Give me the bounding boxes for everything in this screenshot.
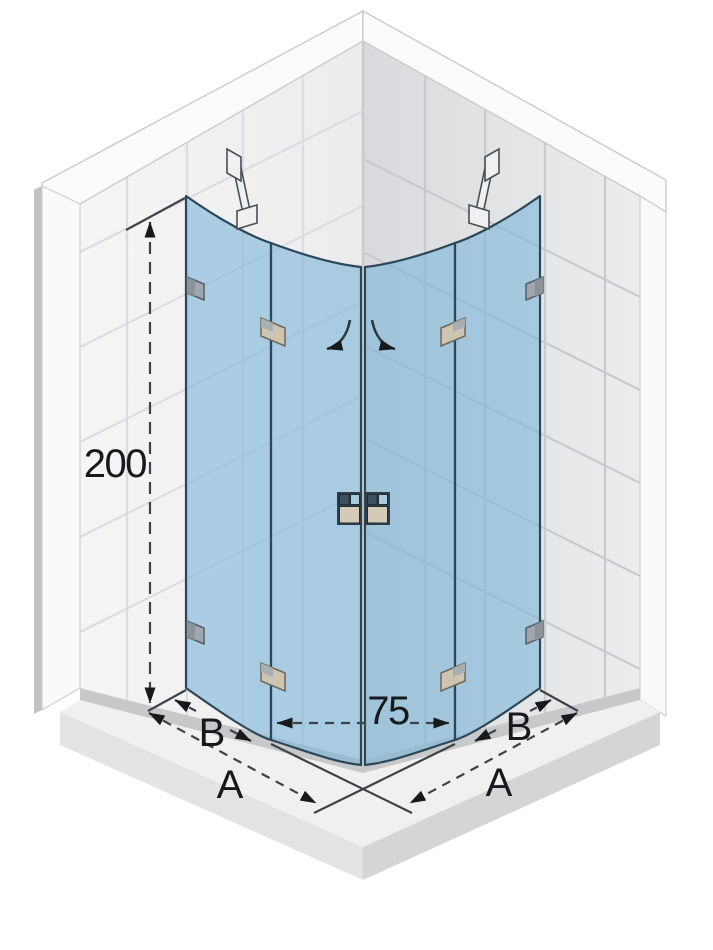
door-knob-icon	[337, 492, 362, 525]
dimension-label-front-width: 75	[367, 689, 409, 733]
left-wall-edge-shadow	[34, 186, 42, 714]
glass-side-panel-left	[186, 196, 271, 740]
glass-side-panel-right	[455, 196, 540, 740]
diagram-canvas: 200 75 B B A A	[0, 0, 713, 950]
door-knob-icon	[365, 492, 390, 525]
dimension-label-a-left: A	[217, 763, 244, 807]
dimension-label-b-right: B	[506, 705, 533, 749]
shower-enclosure-diagram: 200 75 B B A A	[0, 0, 713, 950]
dimension-label-height: 200	[84, 442, 146, 486]
dimension-label-a-right: A	[486, 761, 513, 805]
right-wall-edge-band	[640, 196, 666, 716]
left-wall-edge-band	[42, 186, 80, 710]
dimension-label-b-left: B	[199, 711, 226, 755]
